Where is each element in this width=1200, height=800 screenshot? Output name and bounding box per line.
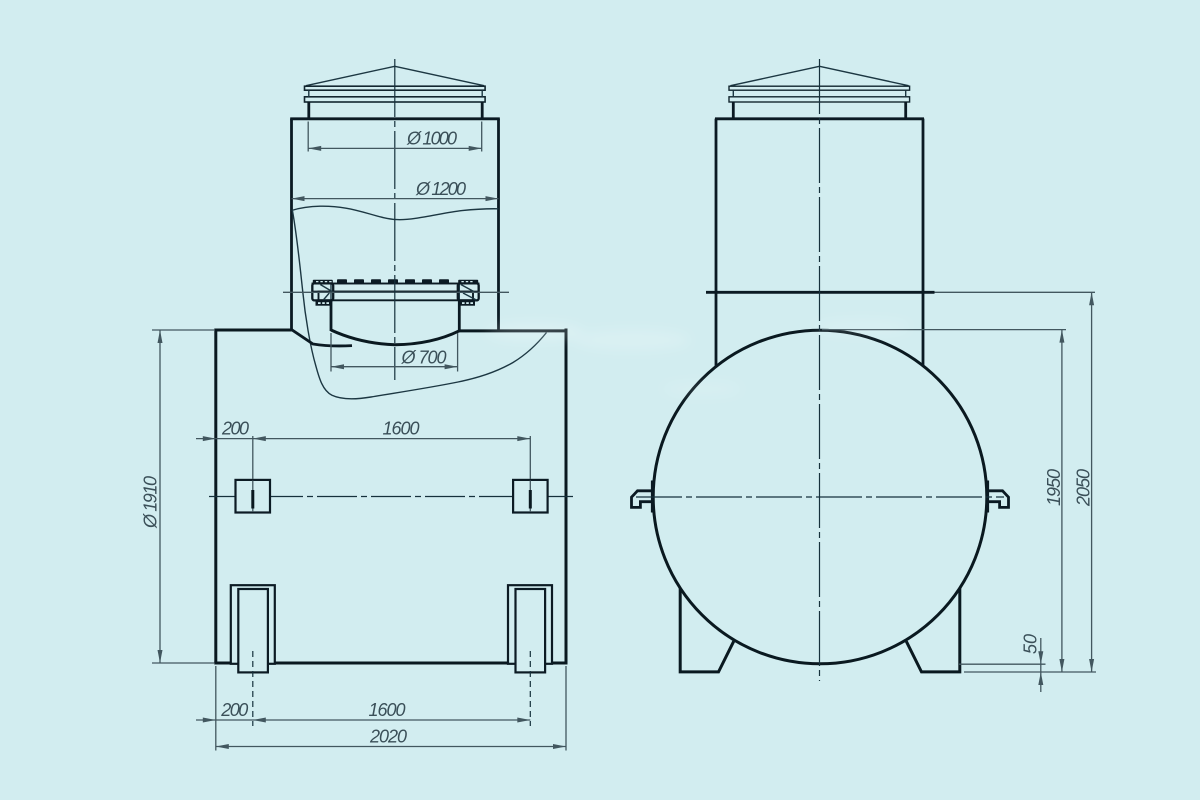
svg-text:1600: 1600	[369, 700, 406, 720]
svg-text:Ø 1200: Ø 1200	[415, 179, 466, 199]
svg-text:2050: 2050	[1074, 469, 1094, 507]
svg-text:Ø 1000: Ø 1000	[406, 129, 457, 149]
svg-text:2020: 2020	[369, 726, 407, 746]
svg-text:1950: 1950	[1044, 469, 1064, 506]
svg-text:1600: 1600	[383, 418, 420, 438]
svg-text:200: 200	[220, 700, 248, 720]
svg-text:Ø 700: Ø 700	[401, 347, 447, 367]
svg-text:50: 50	[1021, 634, 1041, 654]
svg-text:Ø 1910: Ø 1910	[141, 476, 161, 529]
svg-text:200: 200	[221, 418, 249, 438]
